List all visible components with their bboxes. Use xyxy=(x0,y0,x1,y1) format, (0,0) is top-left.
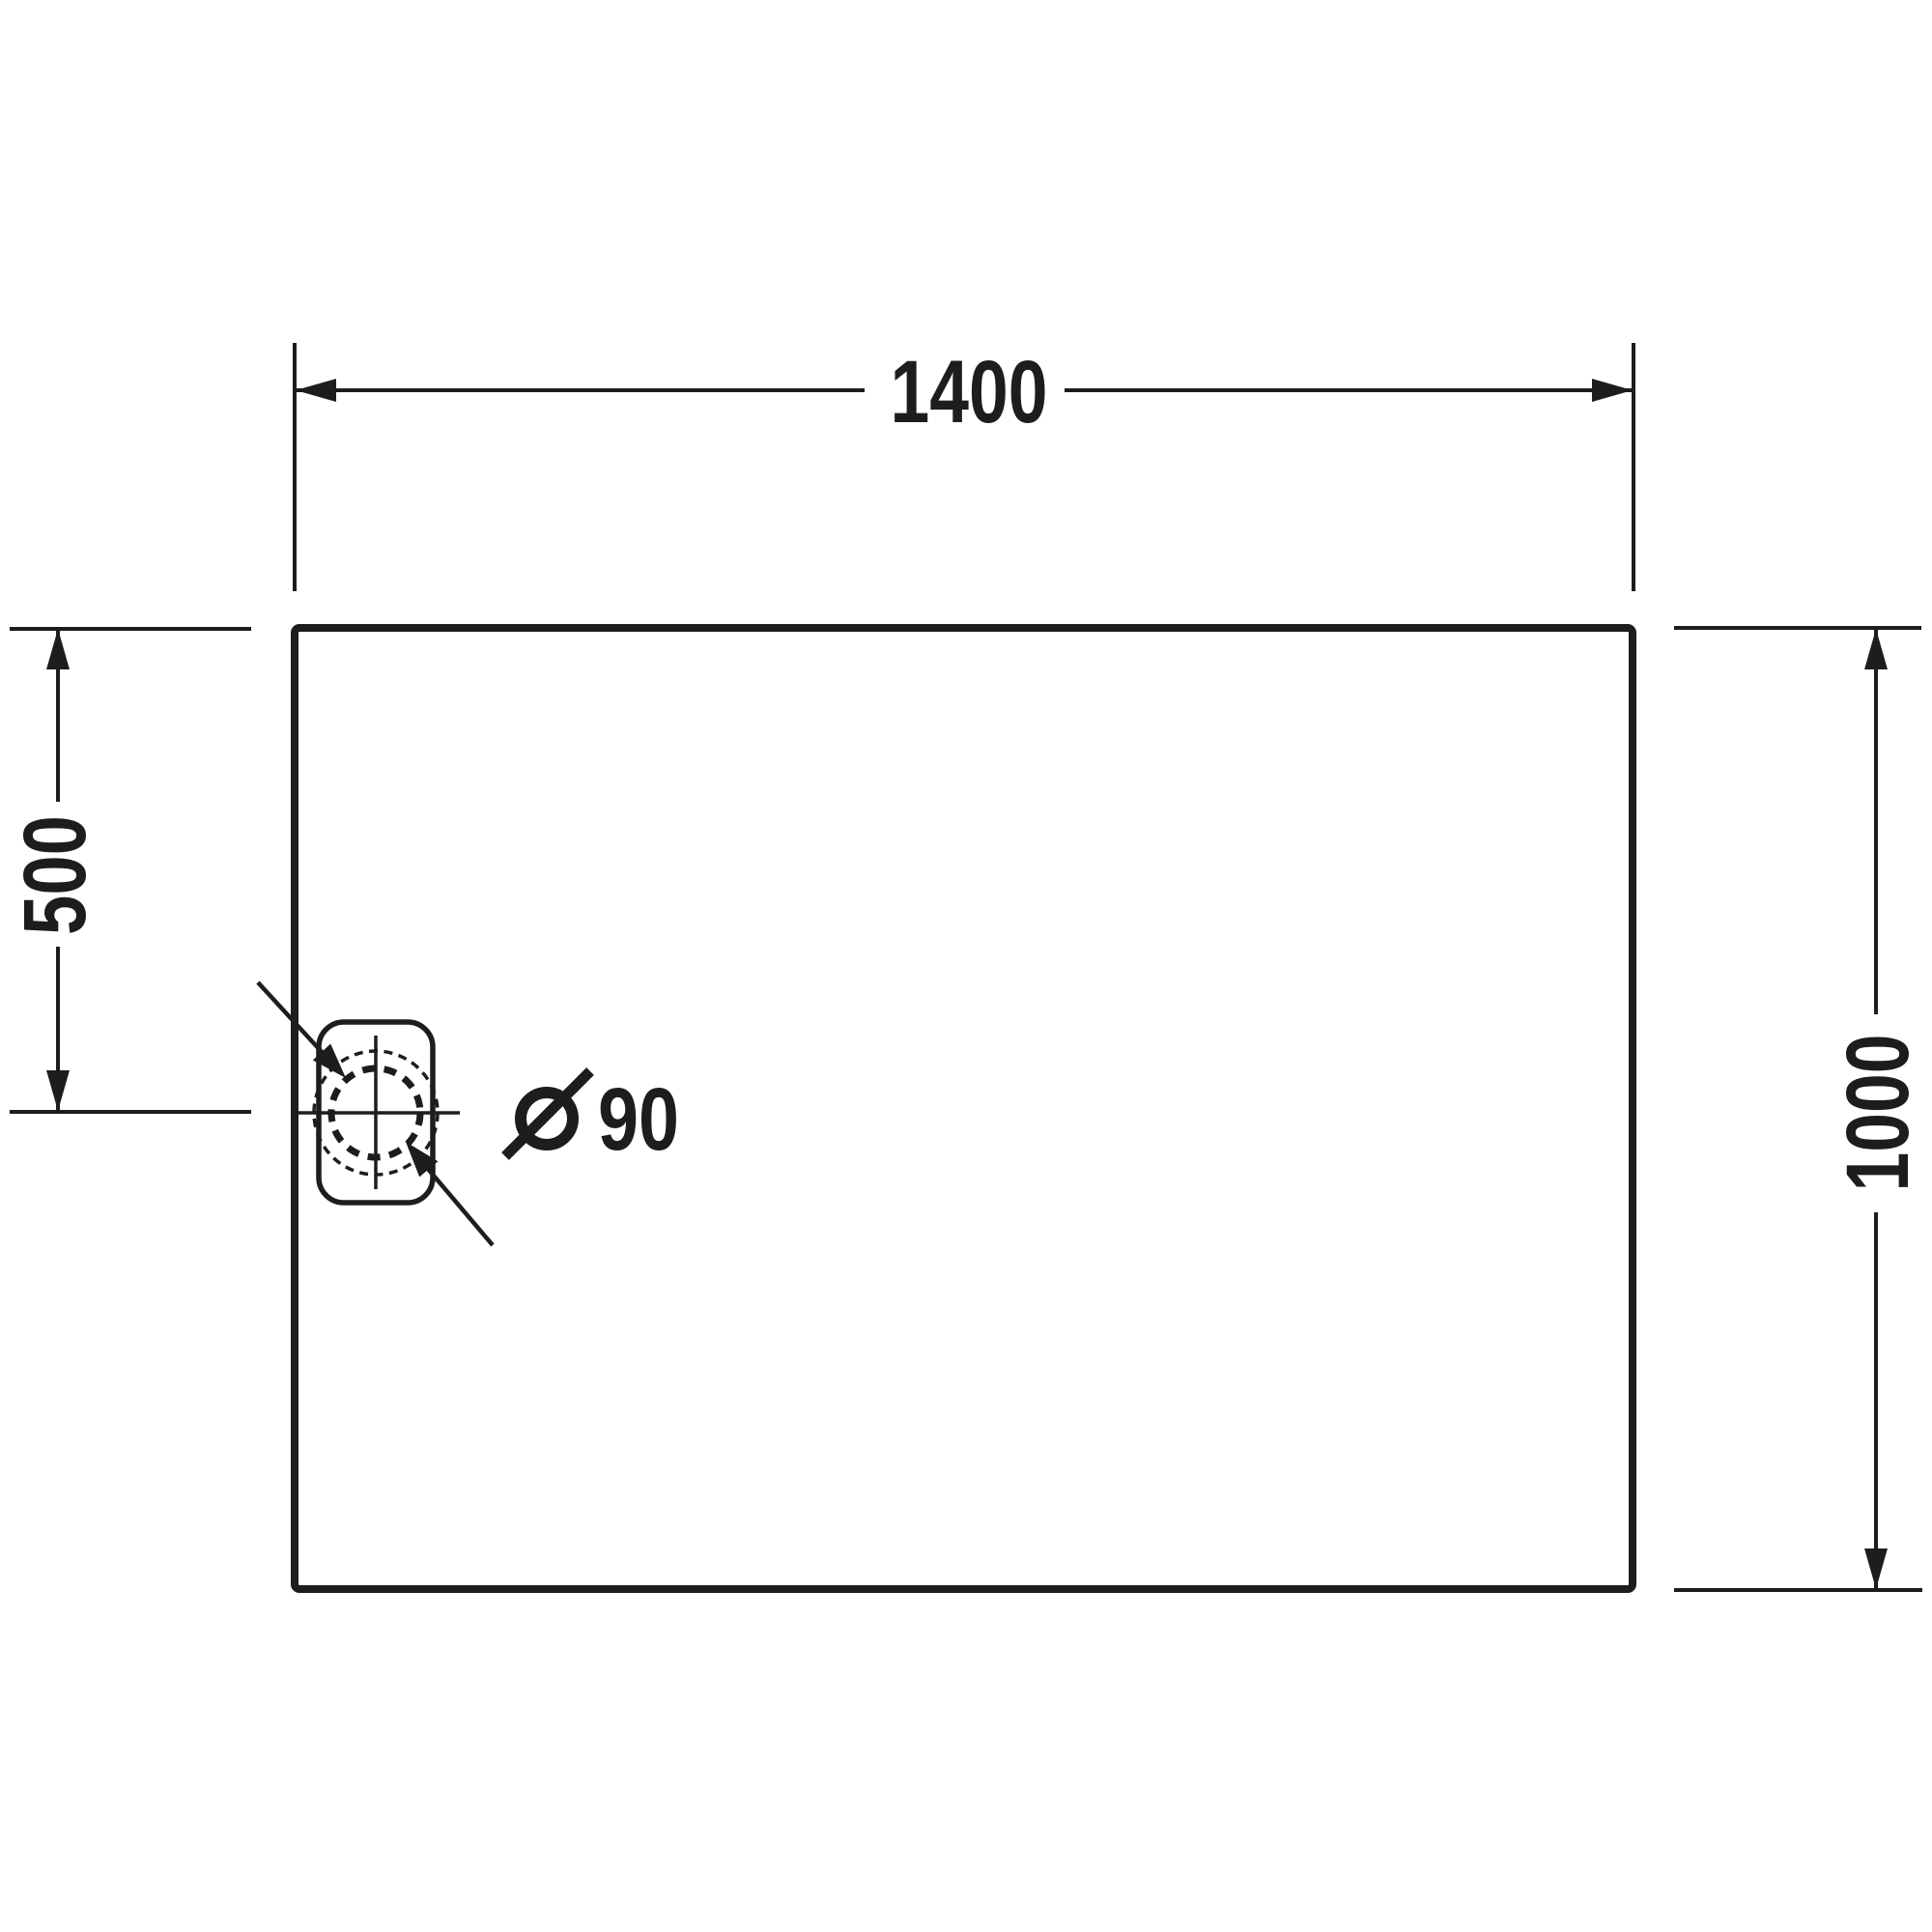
technical-drawing-canvas: 1400 500 1000 xyxy=(0,0,1932,1932)
depth-dimension-label: 1000 xyxy=(1829,1035,1927,1192)
leader-line-upper-left xyxy=(258,982,323,1053)
tray-rectangle xyxy=(295,628,1633,1589)
offset-arrowhead-down-icon xyxy=(46,1070,70,1111)
offset-arrowhead-up-icon xyxy=(46,629,70,669)
shower-tray-dimension-drawing: 1400 500 1000 xyxy=(0,0,1932,1932)
leader-line-lower-right xyxy=(428,1169,493,1245)
depth-dimension: 1000 xyxy=(1674,628,1927,1590)
drain-diameter-value: 90 xyxy=(598,1070,679,1169)
width-dimension-label: 1400 xyxy=(891,343,1048,441)
diameter-symbol-icon xyxy=(505,1071,590,1156)
width-arrowhead-right-icon xyxy=(1592,379,1633,402)
tray-outline xyxy=(295,628,1633,1589)
width-dimension: 1400 xyxy=(295,343,1634,591)
width-arrowhead-left-icon xyxy=(296,379,336,402)
drain-leader-lower-right xyxy=(406,1142,493,1245)
drain-diameter-label: 90 xyxy=(505,1070,679,1169)
drain-leader-upper-left xyxy=(258,982,346,1078)
depth-arrowhead-down-icon xyxy=(1864,1548,1888,1589)
drain-offset-dimension: 500 xyxy=(6,629,251,1112)
drain-offset-dimension-label: 500 xyxy=(6,815,104,935)
depth-arrowhead-up-icon xyxy=(1864,629,1888,669)
